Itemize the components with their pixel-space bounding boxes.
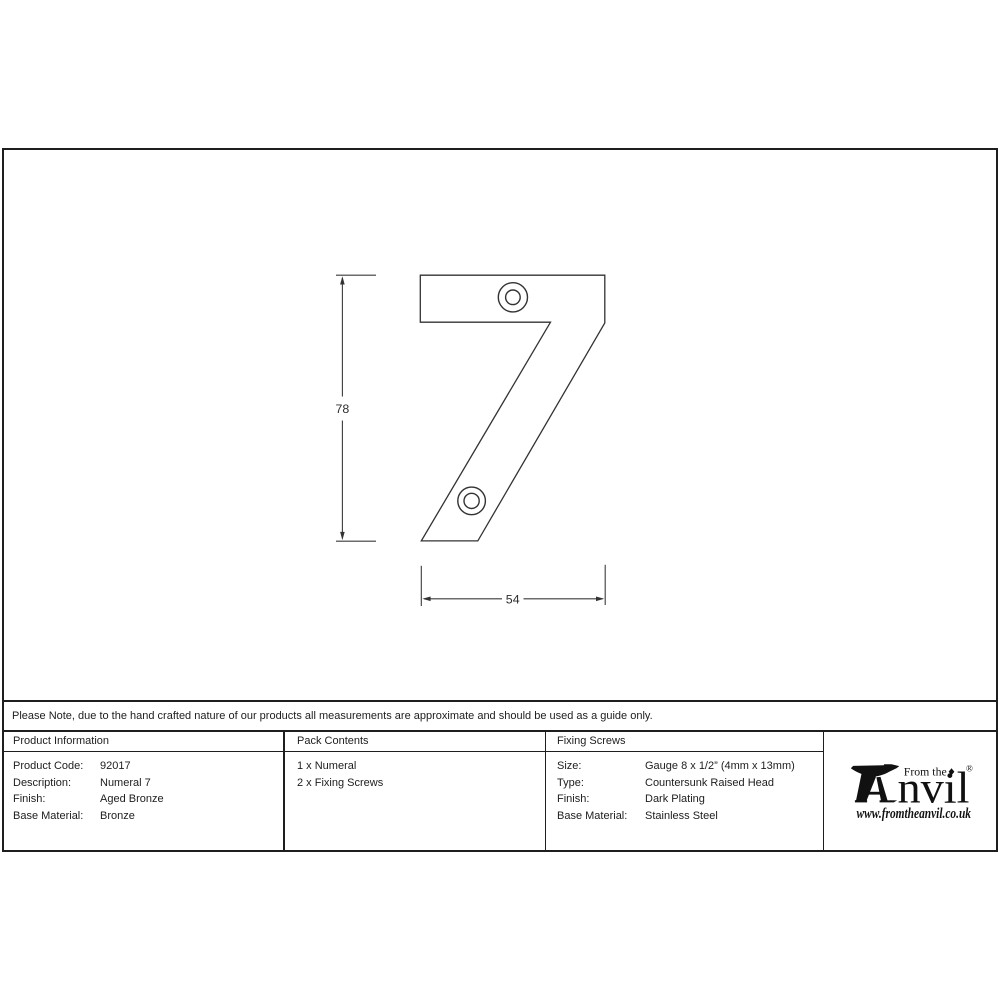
svg-text:®: ® — [966, 764, 973, 774]
svg-text:www.fromtheanvil.co.uk: www.fromtheanvil.co.uk — [857, 806, 972, 822]
svg-text:nvil: nvil — [898, 762, 970, 812]
